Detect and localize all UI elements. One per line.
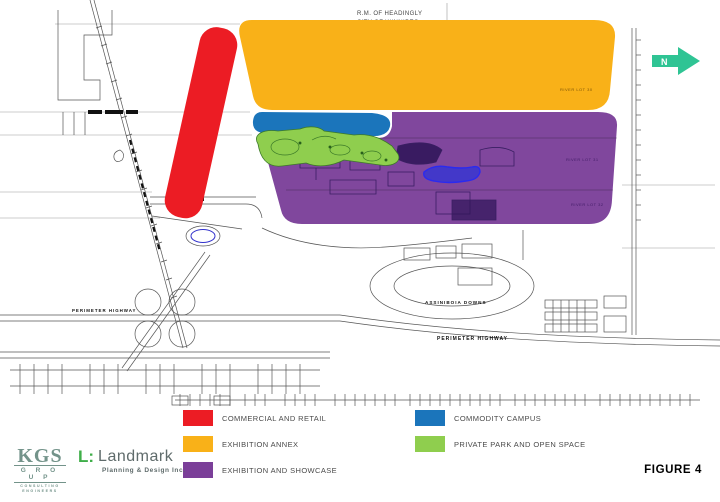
figure-number: FIGURE 4 [644,464,702,476]
legend-label-annex: EXHIBITION ANNEX [222,440,298,449]
kgs-logo-tagline-2: ENGINEERS [14,489,66,493]
legend-label-commercial: COMMERCIAL AND RETAIL [222,414,326,423]
racetrack [370,244,534,319]
paddock-grid [545,296,626,332]
stormwater-pond [186,226,220,246]
site-plan-map: R.M. OF HEADINGLY CITY OF WINNIPEG [0,0,720,502]
landmark-logo-mark: L: [78,449,94,465]
residential-grid [0,352,330,394]
landmark-logo: L: Landmark Planning & Design Inc. [78,449,186,474]
legend-item-park: PRIVATE PARK AND OPEN SPACE [415,436,586,452]
boundary-label-rm: R.M. OF HEADINGLY [357,11,422,17]
zone-exhibition-annex [239,20,615,110]
legend-label-showcase: EXHIBITION AND SHOWCASE [222,466,337,475]
north-arrow-label: N [661,57,668,67]
legend-swatch-showcase [183,462,213,478]
legend-swatch-commercial [183,410,213,426]
north-arrow: N [652,47,700,75]
legend-item-showcase: EXHIBITION AND SHOWCASE [183,462,337,478]
left-structures-outline [58,10,112,100]
kgs-logo-name: KGS [14,447,66,465]
kgs-group-logo: KGS G R O U P CONSULTING ENGINEERS [14,447,66,494]
river-lot-label-1: RIVER LOT 30 [560,87,593,92]
landmark-logo-name: Landmark [98,449,173,465]
legend-item-commercial: COMMERCIAL AND RETAIL [183,410,326,426]
rail-symbol [114,150,124,162]
lake [424,166,480,182]
landmark-logo-tagline: Planning & Design Inc. [102,467,186,474]
legend-item-commodity: COMMODITY CAMPUS [415,410,541,426]
legend-swatch-park [415,436,445,452]
perimeter-highway-label-bottom: PERIMETER HIGHWAY [437,336,508,342]
legend-swatch-annex [183,436,213,452]
figure-page: R.M. OF HEADINGLY CITY OF WINNIPEG [0,0,720,502]
kgs-logo-group: G R O U P [14,465,66,483]
perimeter-highway [340,315,720,346]
perimeter-highway-label-left: PERIMETER HIGHWAY [72,308,136,313]
legend-label-park: PRIVATE PARK AND OPEN SPACE [454,440,586,449]
cloverleaf-interchange [0,252,340,371]
legend-swatch-commodity [415,410,445,426]
kgs-logo-tagline-1: CONSULTING [14,484,66,488]
east-road [632,28,641,335]
zone-commercial-retail [161,24,240,222]
river-lot-label-3: RIVER LOT 32 [571,202,604,207]
racetrack-label: ASSINIBOIA DOWNS [425,300,487,305]
legend-label-commodity: COMMODITY CAMPUS [454,414,541,423]
left-lot-ticks [63,112,85,135]
legend-item-annex: EXHIBITION ANNEX [183,436,298,452]
river-lot-label-2: RIVER LOT 31 [566,157,599,162]
lot-comb-row [172,394,700,406]
